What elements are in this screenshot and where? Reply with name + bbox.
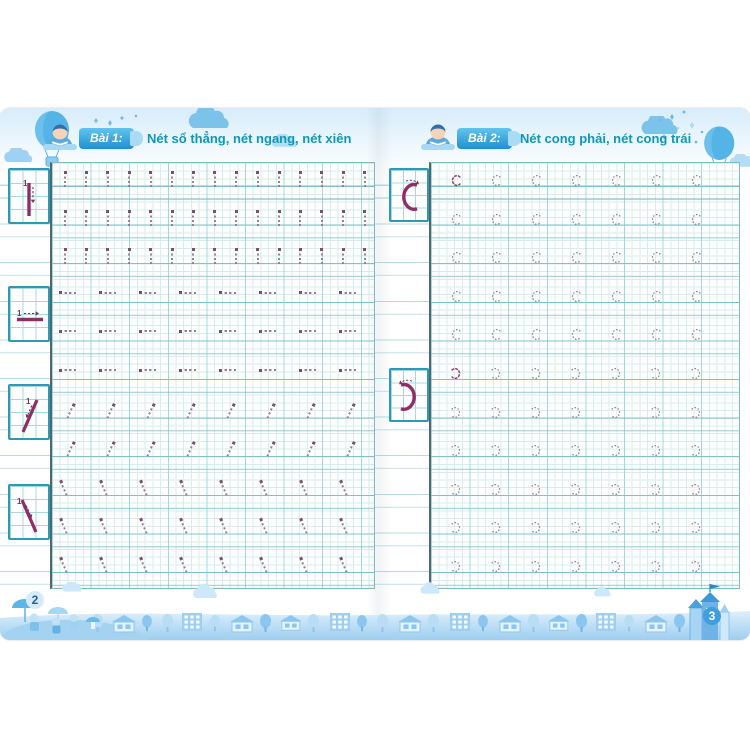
- trace-glyph-c: [690, 328, 702, 341]
- trace-glyph-c: [530, 290, 542, 303]
- trace-glyph-bar: [321, 249, 323, 264]
- trace-glyph-c: [450, 251, 462, 264]
- trace-glyph-dash: [140, 330, 158, 332]
- trace-glyph-dash: [300, 330, 318, 332]
- trace-glyph-backslash: [180, 558, 188, 573]
- trace-glyph-bar: [342, 172, 344, 187]
- trace-glyph-c: [690, 251, 702, 264]
- trace-glyph-bar: [64, 249, 66, 264]
- trace-glyph-dash: [180, 330, 198, 332]
- trace-glyph-rc: [450, 444, 462, 457]
- stroke-example-box: [389, 368, 429, 422]
- trace-glyph-bar: [342, 249, 344, 264]
- trace-glyph-dash: [300, 292, 318, 294]
- book-spread: Bài 1: Nét sổ thẳng, nét ngang, nét xiên…: [0, 108, 750, 640]
- trace-glyph-bar: [171, 249, 173, 264]
- trace-glyph-dash: [220, 369, 238, 371]
- trace-glyph-bar: [235, 211, 237, 226]
- c-stroke-icon: [391, 170, 427, 220]
- trace-glyph-bar: [214, 249, 216, 264]
- trace-glyph-c: [490, 213, 502, 226]
- trace-glyph-backslash: [300, 481, 308, 496]
- trace-glyph-backslash: [260, 519, 268, 534]
- trace-glyph-bar: [85, 211, 87, 226]
- trace-glyph-rc: [530, 521, 542, 534]
- trace-glyph-backslash: [140, 519, 148, 534]
- reading-kid-icon: [420, 122, 456, 152]
- trace-glyph-backslash: [100, 558, 108, 573]
- trace-glyph-dash: [100, 330, 118, 332]
- trace-glyph-backslash: [220, 481, 228, 496]
- trace-glyph-rc: [650, 367, 662, 380]
- trace-glyph-rc: [530, 483, 542, 496]
- svg-text:1: 1: [26, 397, 31, 406]
- trace-glyph-backslash: [140, 481, 148, 496]
- trace-glyph-bar: [192, 249, 194, 264]
- trace-glyph-bar: [299, 172, 301, 187]
- trace-glyph-backslash: [260, 481, 268, 496]
- trace-glyph-bar: [128, 172, 130, 187]
- trace-glyph-rc: [570, 483, 582, 496]
- trace-glyph-backslash: [220, 558, 228, 573]
- trace-glyph-rc: [450, 406, 462, 419]
- trace-glyph-c: [570, 328, 582, 341]
- trace-glyph-rc: [450, 521, 462, 534]
- trace-glyph-c: [650, 251, 662, 264]
- reading-kid-icon: [42, 122, 78, 152]
- trace-glyph-c: [530, 213, 542, 226]
- trace-glyph-rc: [570, 521, 582, 534]
- trace-glyph-slash: [346, 442, 354, 457]
- trace-glyph-dash: [60, 292, 78, 294]
- trace-glyph-c: [690, 290, 702, 303]
- trace-glyph-slash: [306, 404, 314, 419]
- trace-glyph-rc: [570, 560, 582, 573]
- stroke-example-box: [389, 168, 429, 222]
- svg-text:1: 1: [17, 497, 22, 506]
- trace-glyph-rc: [690, 367, 702, 380]
- trace-glyph-bar: [192, 211, 194, 226]
- trace-glyph-c: [530, 174, 542, 187]
- trace-glyph-dash: [260, 369, 278, 371]
- trace-glyph-dash: [260, 330, 278, 332]
- trace-glyph-backslash: [340, 481, 348, 496]
- trace-glyph-slash: [226, 404, 234, 419]
- trace-glyph-rc: [650, 521, 662, 534]
- trace-glyph-c: [450, 174, 462, 187]
- trace-glyph-bar: [85, 172, 87, 187]
- trace-glyph-rc: [450, 560, 462, 573]
- trace-glyph-c: [610, 328, 622, 341]
- trace-glyph-rc: [650, 483, 662, 496]
- trace-glyph-bar: [107, 249, 109, 264]
- trace-glyph-bar: [342, 211, 344, 226]
- trace-glyph-c: [530, 251, 542, 264]
- trace-glyph-rc: [610, 367, 622, 380]
- svg-text:1: 1: [23, 179, 28, 188]
- trace-glyph-rc: [450, 367, 462, 380]
- trace-glyph-dash: [300, 369, 318, 371]
- trace-glyph-rc: [570, 367, 582, 380]
- workbook-photo: Bài 1: Nét sổ thẳng, nét ngang, nét xiên…: [0, 0, 750, 750]
- trace-glyph-slash: [266, 442, 274, 457]
- trace-glyph-backslash: [100, 519, 108, 534]
- trace-glyph-c: [570, 174, 582, 187]
- trace-glyph-rc: [650, 444, 662, 457]
- trace-glyph-c: [650, 213, 662, 226]
- trace-glyph-bar: [257, 172, 259, 187]
- trace-glyph-rc: [490, 406, 502, 419]
- trace-glyph-slash: [106, 442, 114, 457]
- trace-glyph-rc: [650, 406, 662, 419]
- trace-glyph-backslash: [140, 558, 148, 573]
- trace-glyph-bar: [278, 172, 280, 187]
- trace-glyph-c: [610, 251, 622, 264]
- practice-grid-right: [429, 162, 740, 589]
- trace-glyph-bar: [278, 211, 280, 226]
- trace-glyph-bar: [150, 172, 152, 187]
- trace-glyph-c: [690, 213, 702, 226]
- trace-glyph-c: [570, 213, 582, 226]
- trace-glyph-dash: [60, 369, 78, 371]
- trace-glyph-bar: [150, 211, 152, 226]
- trace-glyph-slash: [186, 404, 194, 419]
- trace-glyph-rc: [650, 560, 662, 573]
- trace-glyph-rc: [610, 444, 622, 457]
- trace-glyph-slash: [146, 404, 154, 419]
- lesson-badge: Bài 2:: [457, 128, 512, 149]
- trace-glyph-backslash: [60, 558, 68, 573]
- trace-glyph-rc: [490, 444, 502, 457]
- trace-glyph-bar: [257, 211, 259, 226]
- trace-glyph-c: [650, 290, 662, 303]
- trace-glyph-bar: [85, 249, 87, 264]
- trace-glyph-bar: [321, 172, 323, 187]
- trace-glyph-rc: [690, 560, 702, 573]
- trace-glyph-bar: [214, 211, 216, 226]
- slash-stroke-icon: 1: [10, 386, 48, 438]
- trace-glyph-backslash: [260, 558, 268, 573]
- trace-glyph-c: [450, 290, 462, 303]
- trace-glyph-c: [490, 290, 502, 303]
- trace-glyph-dash: [180, 369, 198, 371]
- trace-glyph-backslash: [300, 519, 308, 534]
- trace-glyph-c: [690, 174, 702, 187]
- trace-glyph-rc: [610, 483, 622, 496]
- trace-glyph-slash: [106, 404, 114, 419]
- trace-glyph-bar: [214, 172, 216, 187]
- trace-glyph-c: [450, 213, 462, 226]
- bar-stroke-icon: 1: [10, 170, 48, 222]
- trace-glyph-bar: [299, 211, 301, 226]
- trace-glyph-slash: [66, 442, 74, 457]
- dash-stroke-icon: 1: [10, 288, 48, 340]
- stroke-example-box: 1: [8, 168, 50, 224]
- trace-glyph-rc: [530, 367, 542, 380]
- trace-glyph-c: [610, 290, 622, 303]
- trace-glyph-dash: [220, 292, 238, 294]
- trace-glyph-backslash: [100, 481, 108, 496]
- trace-glyph-c: [610, 174, 622, 187]
- trace-glyph-rc: [490, 483, 502, 496]
- stroke-example-box: 1: [8, 286, 50, 342]
- trace-glyph-rc: [690, 444, 702, 457]
- trace-glyph-c: [650, 174, 662, 187]
- trace-glyph-rc: [530, 444, 542, 457]
- trace-glyph-backslash: [340, 558, 348, 573]
- trace-glyph-dash: [220, 330, 238, 332]
- trace-glyph-rc: [490, 521, 502, 534]
- trace-glyph-bar: [278, 249, 280, 264]
- practice-grid-left: [50, 162, 375, 589]
- trace-glyph-dash: [340, 369, 358, 371]
- trace-glyph-bar: [128, 211, 130, 226]
- trace-glyph-slash: [346, 404, 354, 419]
- trace-glyph-dash: [180, 292, 198, 294]
- lesson-badge: Bài 1:: [79, 128, 134, 149]
- trace-glyph-rc: [610, 406, 622, 419]
- trace-glyph-bar: [321, 211, 323, 226]
- trace-glyph-rc: [610, 560, 622, 573]
- stroke-example-box: 1: [8, 484, 50, 540]
- trace-glyph-c: [490, 174, 502, 187]
- trace-glyph-c: [450, 328, 462, 341]
- trace-glyph-c: [610, 213, 622, 226]
- cloud-icon: [183, 108, 231, 128]
- trace-glyph-backslash: [300, 558, 308, 573]
- trace-glyph-slash: [266, 404, 274, 419]
- rc-stroke-icon: [391, 370, 427, 420]
- trace-glyph-backslash: [180, 481, 188, 496]
- trace-glyph-dash: [260, 292, 278, 294]
- trace-glyph-c: [570, 251, 582, 264]
- page-number: 3: [703, 607, 721, 625]
- trace-glyph-slash: [186, 442, 194, 457]
- trace-glyph-rc: [530, 406, 542, 419]
- backslash-stroke-icon: 1: [10, 486, 48, 538]
- trace-glyph-rc: [690, 406, 702, 419]
- trace-glyph-dash: [340, 330, 358, 332]
- stroke-example-box: 1: [8, 384, 50, 440]
- trace-glyph-dash: [340, 292, 358, 294]
- trace-glyph-dash: [140, 369, 158, 371]
- trace-glyph-bar: [128, 249, 130, 264]
- trace-glyph-backslash: [60, 481, 68, 496]
- trace-glyph-dash: [140, 292, 158, 294]
- trace-glyph-bar: [64, 172, 66, 187]
- trace-glyph-rc: [610, 521, 622, 534]
- trace-glyph-slash: [66, 404, 74, 419]
- trace-glyph-bar: [107, 211, 109, 226]
- trace-glyph-slash: [226, 442, 234, 457]
- trace-glyph-rc: [530, 560, 542, 573]
- page-number: 2: [26, 591, 44, 609]
- footer-landscape: [0, 582, 750, 640]
- trace-glyph-backslash: [340, 519, 348, 534]
- trace-glyph-bar: [235, 172, 237, 187]
- trace-glyph-c: [530, 328, 542, 341]
- trace-glyph-c: [650, 328, 662, 341]
- trace-glyph-bar: [192, 172, 194, 187]
- trace-glyph-bar: [257, 249, 259, 264]
- trace-glyph-rc: [570, 444, 582, 457]
- trace-glyph-c: [570, 290, 582, 303]
- trace-glyph-dash: [100, 369, 118, 371]
- trace-glyph-rc: [570, 406, 582, 419]
- trace-glyph-rc: [490, 560, 502, 573]
- trace-glyph-rc: [690, 483, 702, 496]
- trace-glyph-bar: [171, 172, 173, 187]
- cloud-icon: [0, 148, 34, 162]
- lesson-title: Nét cong phải, nét cong trái: [520, 131, 691, 146]
- trace-glyph-c: [490, 328, 502, 341]
- trace-glyph-bar: [171, 211, 173, 226]
- trace-glyph-dash: [60, 330, 78, 332]
- svg-text:1: 1: [17, 309, 22, 318]
- trace-glyph-rc: [450, 483, 462, 496]
- trace-glyph-bar: [150, 249, 152, 264]
- trace-glyph-rc: [690, 521, 702, 534]
- trace-glyph-slash: [306, 442, 314, 457]
- trace-glyph-bar: [64, 211, 66, 226]
- trace-glyph-bar: [107, 172, 109, 187]
- trace-glyph-c: [490, 251, 502, 264]
- trace-glyph-backslash: [220, 519, 228, 534]
- trace-glyph-bar: [235, 249, 237, 264]
- trace-glyph-backslash: [180, 519, 188, 534]
- trace-glyph-dash: [100, 292, 118, 294]
- trace-glyph-backslash: [60, 519, 68, 534]
- trace-glyph-bar: [299, 249, 301, 264]
- lesson-title: Nét sổ thẳng, nét ngang, nét xiên: [147, 131, 351, 146]
- trace-glyph-rc: [490, 367, 502, 380]
- trace-glyph-slash: [146, 442, 154, 457]
